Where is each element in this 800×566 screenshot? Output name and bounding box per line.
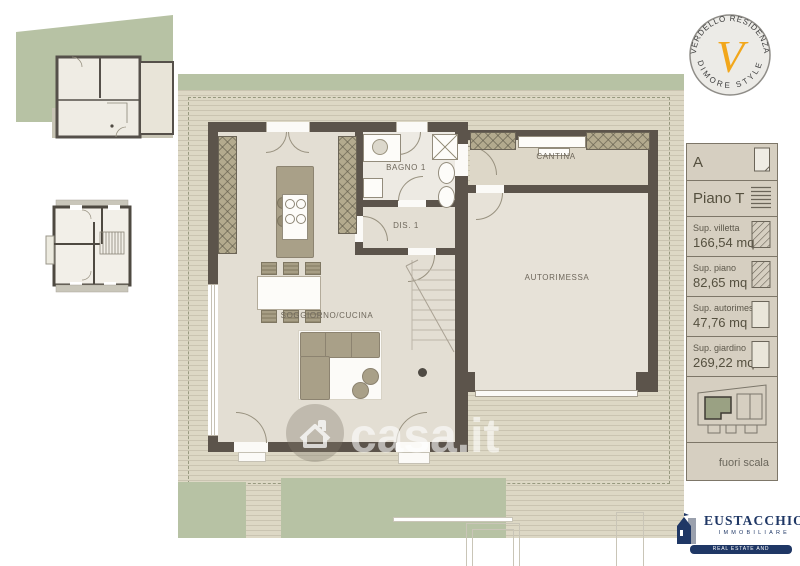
storage-hatch: [470, 132, 516, 150]
french-door-opening: [266, 122, 310, 132]
window: [208, 284, 218, 436]
agency-line2: IMMOBILIARE: [704, 530, 800, 536]
room-label-soggiorno: SOGGIORNO/CUCINA: [281, 311, 374, 320]
hatched-area-icon: [751, 220, 771, 253]
agency-logo: EUSTACCHIO IMMOBILIARE REAL ESTATE AND I…: [660, 506, 796, 562]
room-label-dis: DIS. 1: [393, 221, 419, 230]
dining-table: [257, 276, 321, 310]
pouf: [352, 382, 369, 399]
door-opening: [396, 122, 428, 132]
stairs-icon: [749, 184, 771, 213]
kitchen-cabinet: [218, 136, 237, 254]
door-opening: [476, 185, 504, 193]
unit-label: A: [693, 155, 703, 170]
shelf: [518, 136, 586, 148]
door-opening: [234, 442, 268, 452]
door-icon: [753, 147, 771, 178]
floorplan-page: SOGGIORNO/CUCINA BAGNO 1 DIS. 1 CANTINA …: [0, 0, 800, 566]
thumb-garage: [140, 62, 173, 134]
residence-badge: VERDELLO RESIDENZA DIMORE STYLE V: [688, 13, 772, 97]
path-outline: [616, 512, 644, 566]
door-opening: [408, 248, 436, 255]
sofa: [300, 332, 380, 358]
exterior-step: [238, 452, 266, 462]
metric-row: Sup. piano 82,65 mq: [687, 257, 777, 297]
garden-patch-left: [178, 482, 246, 538]
metric-row: Sup. giardino 269,22 mq: [687, 337, 777, 377]
panel-thumbnail-row: [687, 377, 777, 443]
gate-line: [393, 517, 513, 522]
garage-floor: [468, 193, 648, 390]
wall-pier: [636, 372, 658, 392]
panel-site-mini-plan: [695, 381, 769, 439]
agency-name: EUSTACCHIO: [704, 514, 800, 528]
staircase: [404, 258, 456, 354]
room-label-autorimessa: AUTORIMESSA: [525, 273, 590, 282]
toilet: [438, 162, 455, 184]
chair: [283, 262, 299, 275]
shower: [432, 134, 458, 160]
bidet: [438, 186, 455, 208]
room-label-bagno: BAGNO 1: [386, 163, 426, 172]
floor-label: Piano T: [693, 191, 744, 206]
washbasin: [372, 139, 388, 155]
site-plan-thumbnail: [12, 8, 176, 144]
unit-row: A: [687, 144, 777, 181]
agency-text: EUSTACCHIO IMMOBILIARE: [704, 514, 800, 536]
metric-row: Sup. autorimessa 47,76 mq: [687, 297, 777, 337]
watermark-circle: [286, 404, 344, 462]
thumb-house: [57, 57, 140, 137]
burner: [285, 214, 295, 224]
driveway-outline-inner: [472, 529, 514, 566]
chair: [261, 310, 277, 323]
column: [418, 368, 427, 377]
casa-it-watermark: casa.it: [280, 400, 550, 466]
chair: [305, 262, 321, 275]
wall-segment: [355, 248, 458, 255]
badge-monogram: V: [716, 31, 749, 82]
metric-row: Sup. villetta 166,54 mq: [687, 217, 777, 257]
burner: [285, 199, 295, 209]
outline-area-icon: [751, 340, 771, 373]
floor-row: Piano T: [687, 181, 777, 217]
chair: [261, 262, 277, 275]
wall-segment: [648, 140, 658, 392]
wall-segment: [208, 122, 468, 132]
burner: [296, 214, 306, 224]
wall-pier: [455, 372, 475, 392]
door-opening: [398, 200, 426, 207]
agency-tagline: REAL ESTATE AND INVESTMENTS: [690, 545, 792, 554]
scale-note: fuori scala: [687, 443, 777, 469]
washing-machine: [363, 178, 383, 198]
info-panel: A Piano T Sup. villetta 166,54 mq Sup. p…: [686, 143, 778, 481]
kitchen-cabinet: [338, 136, 357, 234]
upper-floor-thumbnail: [42, 192, 142, 300]
burner: [296, 199, 306, 209]
outline-area-icon: [751, 300, 771, 333]
hatched-area-icon: [751, 260, 771, 293]
watermark-text: casa.it: [350, 410, 499, 463]
garden-strip-top: [178, 74, 684, 90]
garage-door: [475, 390, 638, 397]
sofa-chaise: [300, 356, 330, 400]
room-label-cantina: CANTINA: [536, 152, 575, 161]
storage-hatch: [586, 132, 650, 150]
